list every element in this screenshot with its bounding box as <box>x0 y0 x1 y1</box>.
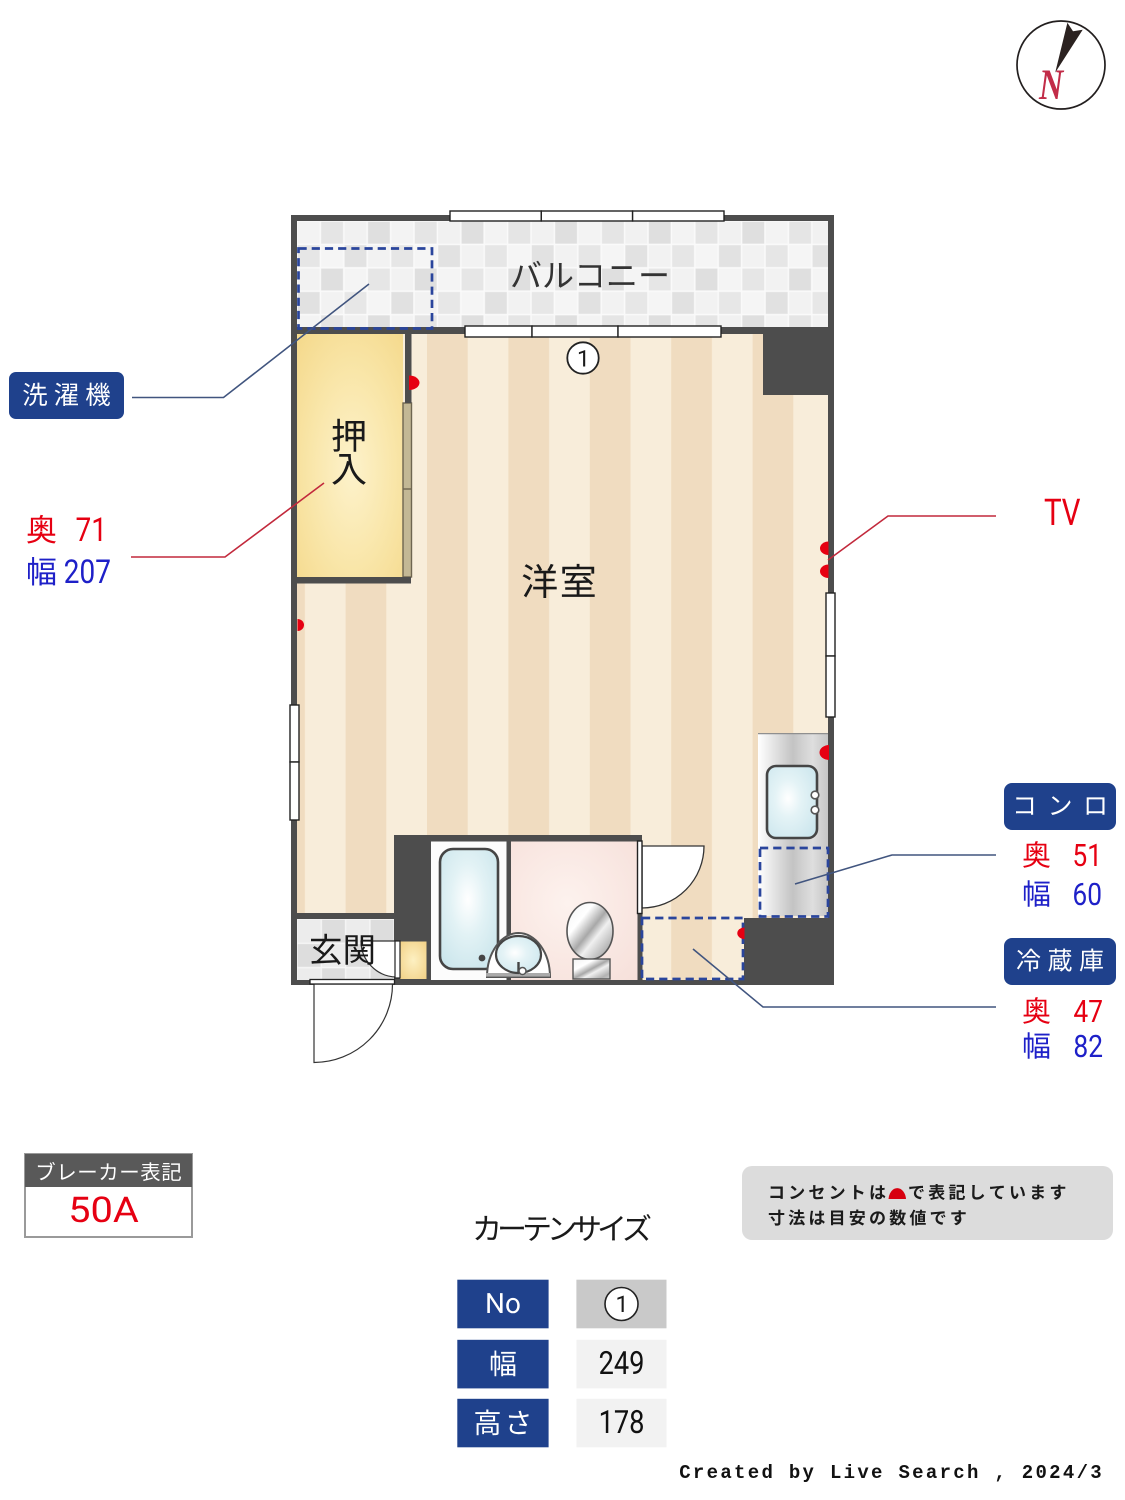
svg-text:N: N <box>1038 62 1064 109</box>
svg-text:Created by Live Search , 2024/: Created by Live Search , 2024/3 <box>679 1462 1104 1484</box>
